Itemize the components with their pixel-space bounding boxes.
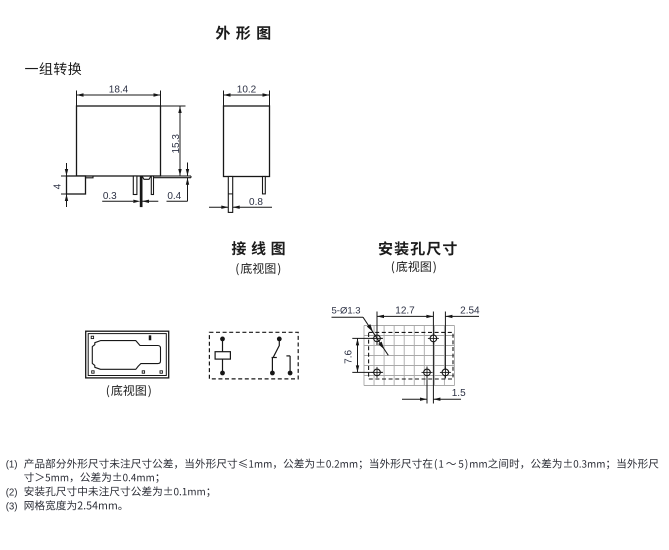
- svg-text:18.4: 18.4: [109, 84, 129, 95]
- svg-text:5-Ø1.3: 5-Ø1.3: [332, 305, 361, 316]
- svg-text:0.8: 0.8: [249, 197, 263, 208]
- svg-text:12.7: 12.7: [395, 306, 415, 317]
- svg-text:(1): (1): [6, 460, 18, 471]
- svg-text:0.3: 0.3: [103, 191, 117, 202]
- svg-text:7.6: 7.6: [344, 350, 355, 364]
- svg-text:10.2: 10.2: [237, 84, 257, 95]
- svg-text:15.3: 15.3: [171, 134, 182, 154]
- svg-text:4: 4: [52, 183, 63, 189]
- svg-text:2.54: 2.54: [460, 306, 480, 317]
- svg-text:1.5: 1.5: [452, 388, 466, 399]
- svg-text:(2): (2): [6, 487, 18, 498]
- svg-text:(3): (3): [6, 501, 18, 512]
- svg-text:0.4: 0.4: [167, 191, 181, 202]
